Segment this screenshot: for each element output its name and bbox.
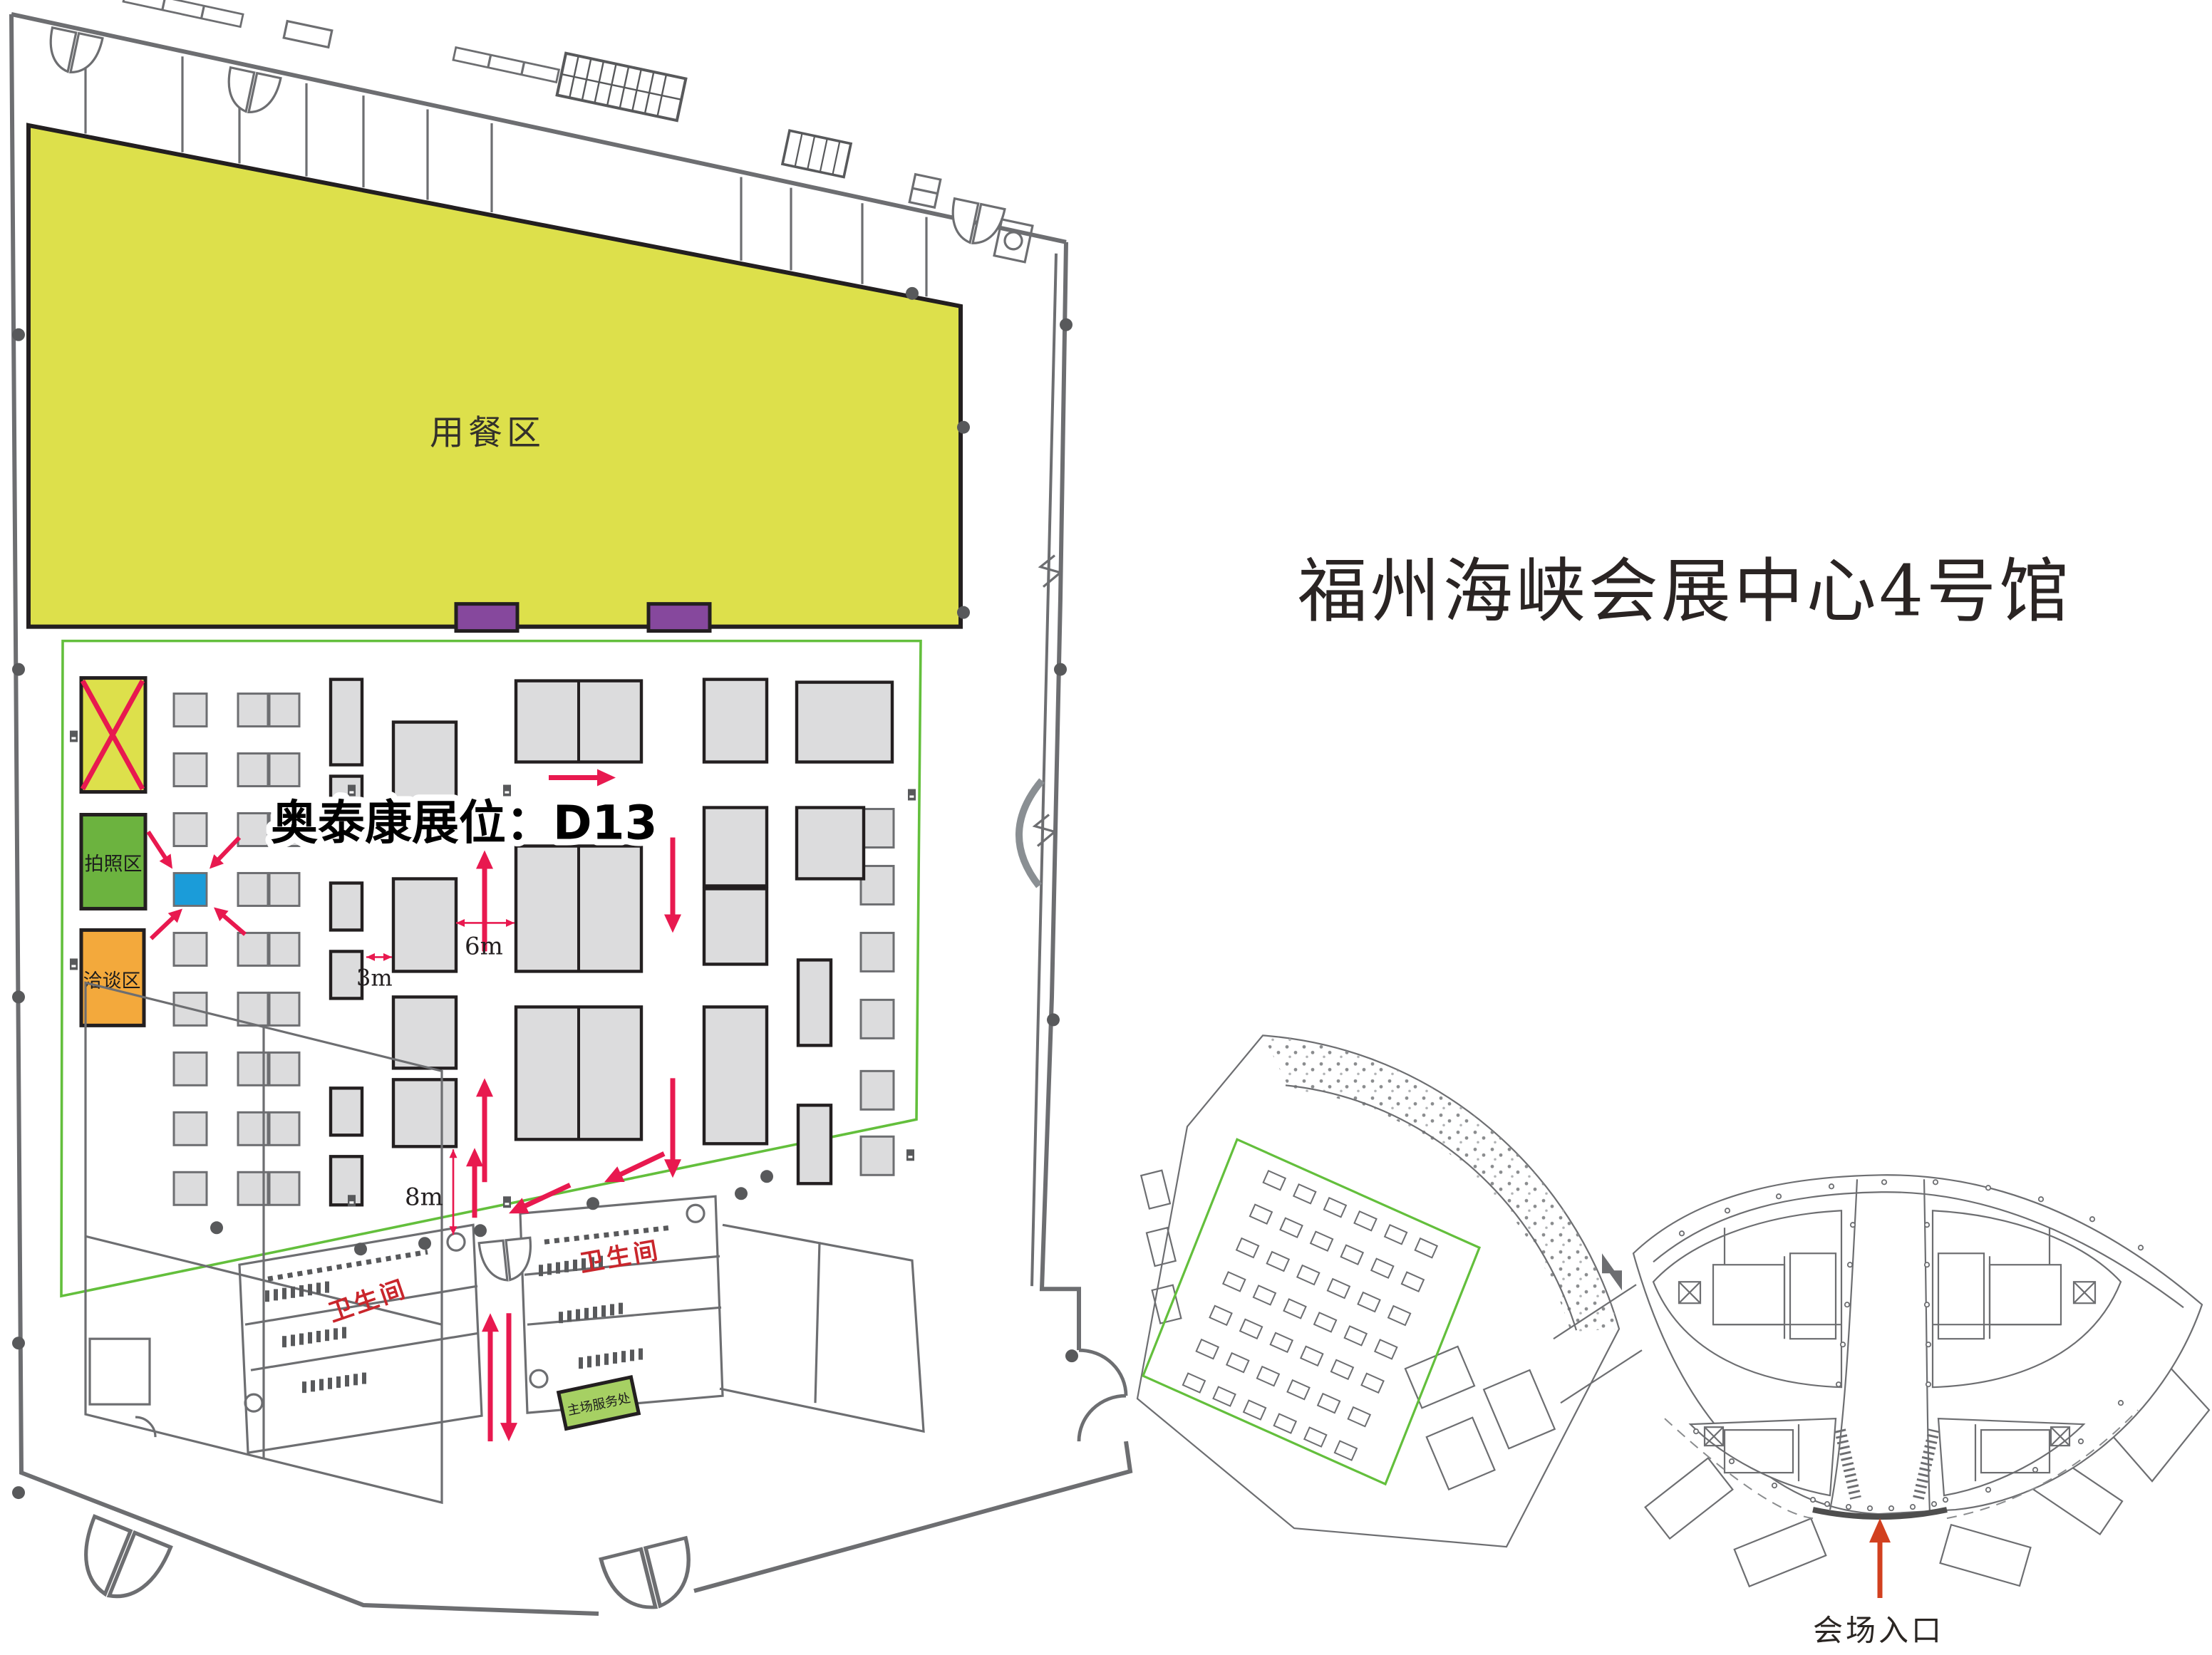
page-title: 福州海峡会展中心4号馆 bbox=[1298, 551, 2072, 633]
route-arrow bbox=[664, 837, 681, 933]
dim-8m-label: 8m bbox=[405, 1183, 443, 1211]
route-arrow bbox=[450, 1149, 458, 1192]
booth bbox=[393, 722, 456, 805]
booth bbox=[269, 992, 299, 1025]
booth bbox=[861, 1136, 894, 1175]
booth bbox=[331, 883, 362, 930]
booth bbox=[174, 694, 207, 727]
booth bbox=[269, 1172, 299, 1205]
route-arrow bbox=[482, 1313, 499, 1441]
exit-door-bottom bbox=[601, 1538, 700, 1617]
route-arrow bbox=[379, 953, 392, 961]
stair-block-2 bbox=[782, 130, 851, 177]
booth bbox=[331, 680, 362, 765]
bottom-left-room bbox=[86, 982, 442, 1503]
booth bbox=[238, 814, 268, 846]
booth bbox=[174, 933, 207, 965]
booth bbox=[393, 997, 456, 1068]
booth bbox=[238, 933, 268, 965]
booth bbox=[238, 694, 268, 727]
site-overview-map: 会场入口 bbox=[1125, 1035, 2209, 1648]
route-arrow bbox=[214, 907, 247, 935]
route-arrow bbox=[476, 1078, 493, 1182]
booth bbox=[238, 873, 268, 906]
route-arrow bbox=[456, 919, 485, 927]
hall4-plan: 用餐区 拍照区 洽谈区 bbox=[11, 0, 1130, 1617]
floor-plan-canvas: 用餐区 拍照区 洽谈区 bbox=[0, 0, 2212, 1655]
booth bbox=[797, 683, 892, 762]
booth bbox=[797, 808, 864, 879]
booth bbox=[174, 814, 207, 846]
restroom-left-label: 卫生间 bbox=[325, 1275, 411, 1328]
booth-callout: 奥泰康展位：D13 bbox=[271, 796, 657, 851]
booth bbox=[174, 754, 207, 787]
overview-fan-building bbox=[1125, 1035, 1619, 1547]
floor-plan-page: 用餐区 拍照区 洽谈区 bbox=[0, 0, 2212, 1655]
dim-6m-label: 6m bbox=[465, 932, 503, 960]
dining-area: 用餐区 bbox=[29, 125, 961, 631]
booth bbox=[269, 754, 299, 787]
booth bbox=[269, 873, 299, 906]
booth bbox=[269, 933, 299, 965]
route-arrow bbox=[500, 1313, 517, 1441]
dim-3m-label: 3m bbox=[356, 964, 393, 991]
booth bbox=[861, 1000, 894, 1038]
special-zones: 拍照区 洽谈区 bbox=[81, 678, 145, 1026]
booth bbox=[269, 694, 299, 727]
booth bbox=[331, 1088, 362, 1135]
booth bbox=[861, 1071, 894, 1109]
route-arrow bbox=[485, 919, 515, 927]
exit-door-left bbox=[69, 1517, 170, 1610]
booth bbox=[174, 1172, 207, 1205]
booth bbox=[704, 680, 767, 762]
booth bbox=[704, 1007, 767, 1143]
route-arrow bbox=[210, 836, 241, 868]
overview-lens-building bbox=[1633, 1175, 2209, 1586]
service-desk: 主场服务处 bbox=[559, 1377, 639, 1428]
stage-block-right bbox=[648, 604, 710, 631]
booth bbox=[238, 754, 268, 787]
booth bbox=[393, 878, 456, 971]
route-arrow bbox=[549, 769, 616, 787]
booth bbox=[174, 1052, 207, 1085]
booth bbox=[269, 1112, 299, 1145]
booth bbox=[331, 1156, 362, 1205]
entrance-arrow bbox=[1869, 1518, 1891, 1598]
entrance-label: 会场入口 bbox=[1813, 1613, 1944, 1648]
restroom-right-label: 卫生间 bbox=[578, 1236, 663, 1278]
route-arrow bbox=[466, 1148, 483, 1218]
booth bbox=[174, 1112, 207, 1145]
booth bbox=[798, 960, 831, 1045]
booth bbox=[861, 866, 894, 904]
route-arrow bbox=[664, 1078, 681, 1178]
booth bbox=[269, 1052, 299, 1085]
stage-block-left bbox=[456, 604, 517, 631]
corridor-door bbox=[479, 1238, 534, 1282]
photo-area-label: 拍照区 bbox=[85, 853, 143, 875]
bridge-ties bbox=[1602, 1253, 1622, 1290]
booth bbox=[861, 809, 894, 848]
booth bbox=[393, 1079, 456, 1146]
booth bbox=[704, 808, 767, 886]
route-arrow bbox=[1869, 1518, 1891, 1598]
booth bbox=[861, 933, 894, 971]
route-arrow bbox=[366, 953, 379, 961]
booth bbox=[704, 888, 767, 964]
dining-area-label: 用餐区 bbox=[430, 413, 545, 453]
route-arrow bbox=[146, 831, 172, 869]
stair-block bbox=[557, 53, 686, 120]
booth-grid bbox=[174, 680, 894, 1205]
booth-d13 bbox=[174, 873, 207, 906]
booth bbox=[798, 1105, 831, 1183]
